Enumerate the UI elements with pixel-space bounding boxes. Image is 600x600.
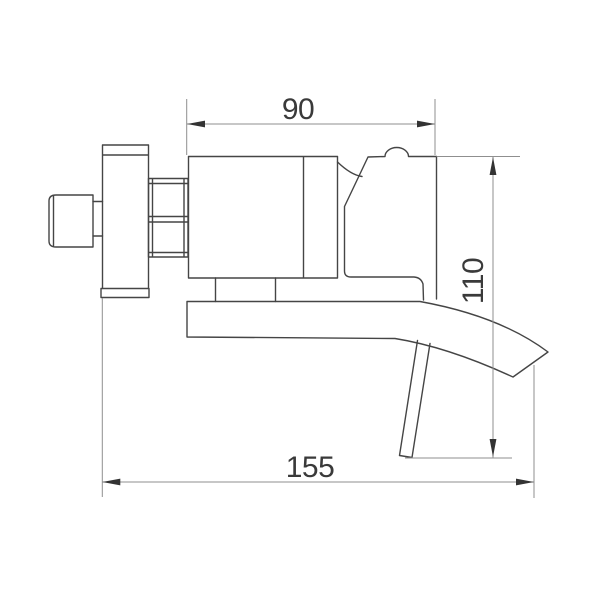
arrow-155-left-icon [102, 479, 120, 486]
outlet-tube-outline [400, 341, 431, 458]
dim-110-label: 110 [457, 258, 490, 304]
dim-110-lines [405, 157, 520, 459]
spout-outline [187, 302, 548, 378]
arrow-90-right-icon [417, 121, 435, 128]
drawing-page: 90 110 155 [0, 0, 600, 600]
handle-outline [338, 148, 437, 301]
supply-stub-outline [216, 278, 276, 302]
arrow-110-up-icon [490, 157, 497, 175]
faucet-dimension-drawing: 90 110 155 [0, 0, 600, 600]
knob-stem-outline [93, 202, 103, 237]
connector-nut-outline [149, 179, 189, 258]
wall-plate-outline [101, 145, 149, 298]
arrow-90-left-icon [187, 121, 205, 128]
dim-155-label: 155 [286, 451, 335, 484]
arrow-155-right-icon [516, 479, 534, 486]
knob-outline [49, 195, 93, 247]
valve-body-outline [189, 157, 338, 279]
dim-90-label: 90 [282, 93, 314, 126]
arrow-110-down-icon [490, 439, 497, 457]
